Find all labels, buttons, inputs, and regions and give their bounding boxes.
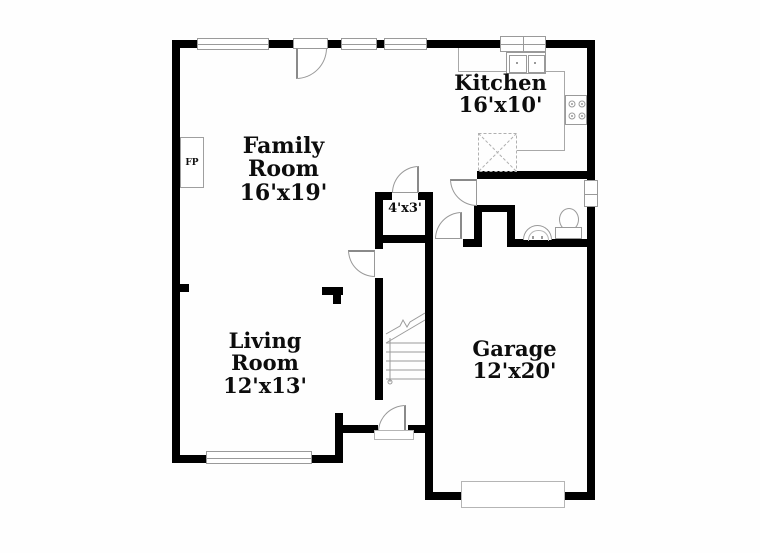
stairs-icon bbox=[384, 296, 426, 388]
label-kitchen: Kitchen 16'x10' bbox=[438, 72, 563, 117]
sink-drain bbox=[534, 62, 536, 64]
kitchen-window bbox=[500, 36, 546, 52]
wall-closet-bottom bbox=[375, 235, 433, 243]
label-family-room: Family Room 16'x19' bbox=[206, 135, 361, 205]
door-swing-stair-hall bbox=[348, 250, 375, 277]
floor-plan: FP Family Room 16'x19' Kitchen 16'x10' L… bbox=[0, 0, 760, 553]
sink-drain bbox=[516, 62, 518, 64]
window-pane-line bbox=[198, 44, 268, 45]
window-pane-line bbox=[385, 44, 426, 45]
wall-top bbox=[328, 40, 341, 48]
living-window bbox=[206, 451, 312, 464]
wall-stub-left bbox=[180, 284, 189, 292]
door-swing-kitchen-hall bbox=[450, 179, 477, 206]
room-name: Living Room bbox=[200, 330, 330, 375]
room-dims: 4'x3' bbox=[383, 202, 427, 216]
counter-edge bbox=[458, 48, 459, 72]
wall-stairhall-west bbox=[375, 278, 383, 400]
label-closet: 4'x3' bbox=[383, 202, 427, 216]
label-garage: Garage 12'x20' bbox=[452, 338, 577, 383]
wall-niche-east bbox=[507, 212, 515, 247]
room-name: Family Room bbox=[206, 135, 361, 182]
wall-left bbox=[172, 40, 180, 463]
door-swing-family-entry bbox=[296, 48, 327, 79]
room-dims: 12'x13' bbox=[200, 375, 330, 397]
door-swing-front bbox=[378, 405, 406, 432]
wall-bath-bottom bbox=[508, 239, 595, 247]
wall-jog bbox=[335, 413, 343, 463]
window bbox=[341, 38, 377, 50]
toilet bbox=[555, 208, 582, 239]
fireplace: FP bbox=[180, 137, 204, 188]
wall-top bbox=[427, 40, 502, 48]
wall-top bbox=[269, 40, 293, 48]
wall-top bbox=[377, 40, 384, 48]
door-swing-closet bbox=[392, 166, 419, 193]
window-pane-line bbox=[585, 194, 597, 195]
faucet-dot bbox=[541, 236, 543, 239]
wall-entry-west bbox=[343, 425, 378, 433]
window bbox=[384, 38, 427, 50]
x-box-icon bbox=[478, 133, 517, 172]
window-pane-line bbox=[342, 44, 376, 45]
stairs bbox=[384, 296, 426, 388]
wall-closet-top bbox=[418, 192, 433, 200]
pantry-x-box bbox=[478, 133, 517, 172]
door-swing-garage-hall bbox=[435, 212, 462, 239]
window bbox=[197, 38, 269, 50]
wall-right bbox=[587, 40, 595, 500]
stove bbox=[565, 95, 587, 125]
bathroom-sink bbox=[523, 225, 552, 240]
wall-stub-mid bbox=[333, 295, 341, 304]
counter-edge bbox=[517, 150, 565, 151]
room-dims: 16'x10' bbox=[438, 94, 563, 116]
window-pane-line bbox=[207, 458, 311, 459]
front-door-threshold bbox=[374, 430, 414, 440]
wall-stairhall-west bbox=[375, 243, 383, 249]
window-pane-line bbox=[523, 37, 524, 51]
room-dims: 12'x20' bbox=[452, 360, 577, 382]
garage-door bbox=[461, 481, 565, 508]
bathroom-window bbox=[584, 180, 598, 207]
toilet-tank bbox=[555, 227, 582, 239]
faucet-dot bbox=[532, 236, 534, 239]
room-dims: 16'x19' bbox=[206, 182, 361, 205]
fireplace-label: FP bbox=[185, 158, 198, 168]
label-living-room: Living Room 12'x13' bbox=[200, 330, 330, 397]
stove-burners bbox=[566, 96, 588, 126]
wall-kitchen-bottom bbox=[477, 171, 590, 179]
wall-stub-mid bbox=[322, 287, 343, 295]
room-name: Kitchen bbox=[438, 72, 563, 94]
wall-niche-top bbox=[474, 205, 515, 212]
room-name: Garage bbox=[452, 338, 577, 360]
